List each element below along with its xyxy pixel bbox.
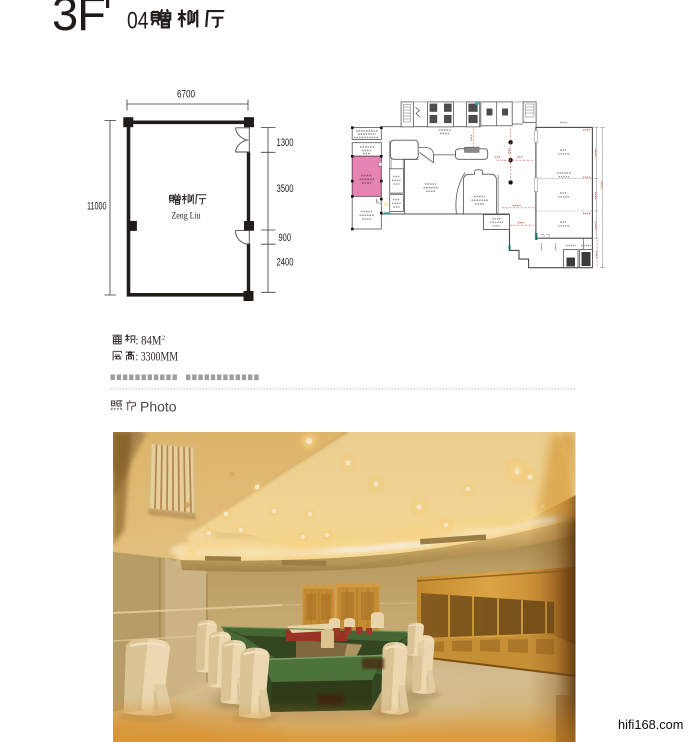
svg-text:6700: 6700: [177, 89, 195, 101]
svg-text:04: 04: [127, 8, 149, 35]
svg-text:Photo: Photo: [140, 399, 177, 415]
svg-text:3F: 3F: [52, 0, 105, 40]
svg-text:11000: 11000: [87, 201, 107, 213]
svg-text:900: 900: [279, 232, 292, 244]
svg-text:hifi168.com: hifi168.com: [618, 717, 683, 732]
svg-text:2400: 2400: [277, 257, 294, 269]
svg-text:1300: 1300: [277, 137, 294, 149]
svg-text:3500: 3500: [277, 183, 294, 195]
svg-text:: 3300MM: : 3300MM: [136, 349, 179, 364]
svg-text:: 84M: : 84M: [136, 332, 162, 347]
svg-text:2: 2: [162, 336, 165, 342]
svg-text:Zeng Liu: Zeng Liu: [172, 212, 201, 222]
